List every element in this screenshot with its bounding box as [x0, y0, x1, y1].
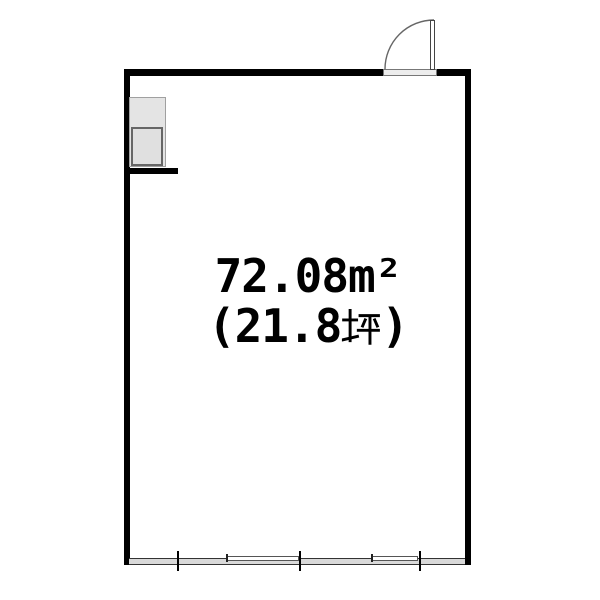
window-pane: [227, 556, 299, 561]
area-tsubo-label: (21.8 ): [208, 301, 408, 351]
window-pane-notch: [371, 554, 373, 562]
wall-right: [465, 69, 471, 565]
tsubo-prefix-text: (21.8: [208, 299, 341, 353]
window-mullion: [177, 551, 179, 571]
wall-top-left-segment: [124, 69, 383, 76]
door-swing-arc-icon: [384, 19, 435, 70]
door-threshold: [383, 69, 437, 76]
window-pane-notch: [226, 554, 228, 562]
window-pane: [372, 556, 418, 561]
window-mullion: [299, 551, 301, 571]
floor-plan: 72.08m² (21.8: [0, 0, 600, 600]
door-leaf: [430, 20, 435, 70]
area-label-block: 72.08m² (21.8: [208, 251, 408, 351]
interior-wall-stub: [124, 168, 178, 174]
area-sqm-label: 72.08m²: [208, 251, 408, 301]
tsubo-kanji-icon: [342, 304, 380, 342]
window-mullion: [419, 551, 421, 571]
fixture-inner-box: [131, 127, 163, 166]
tsubo-suffix-text: ): [381, 299, 408, 353]
